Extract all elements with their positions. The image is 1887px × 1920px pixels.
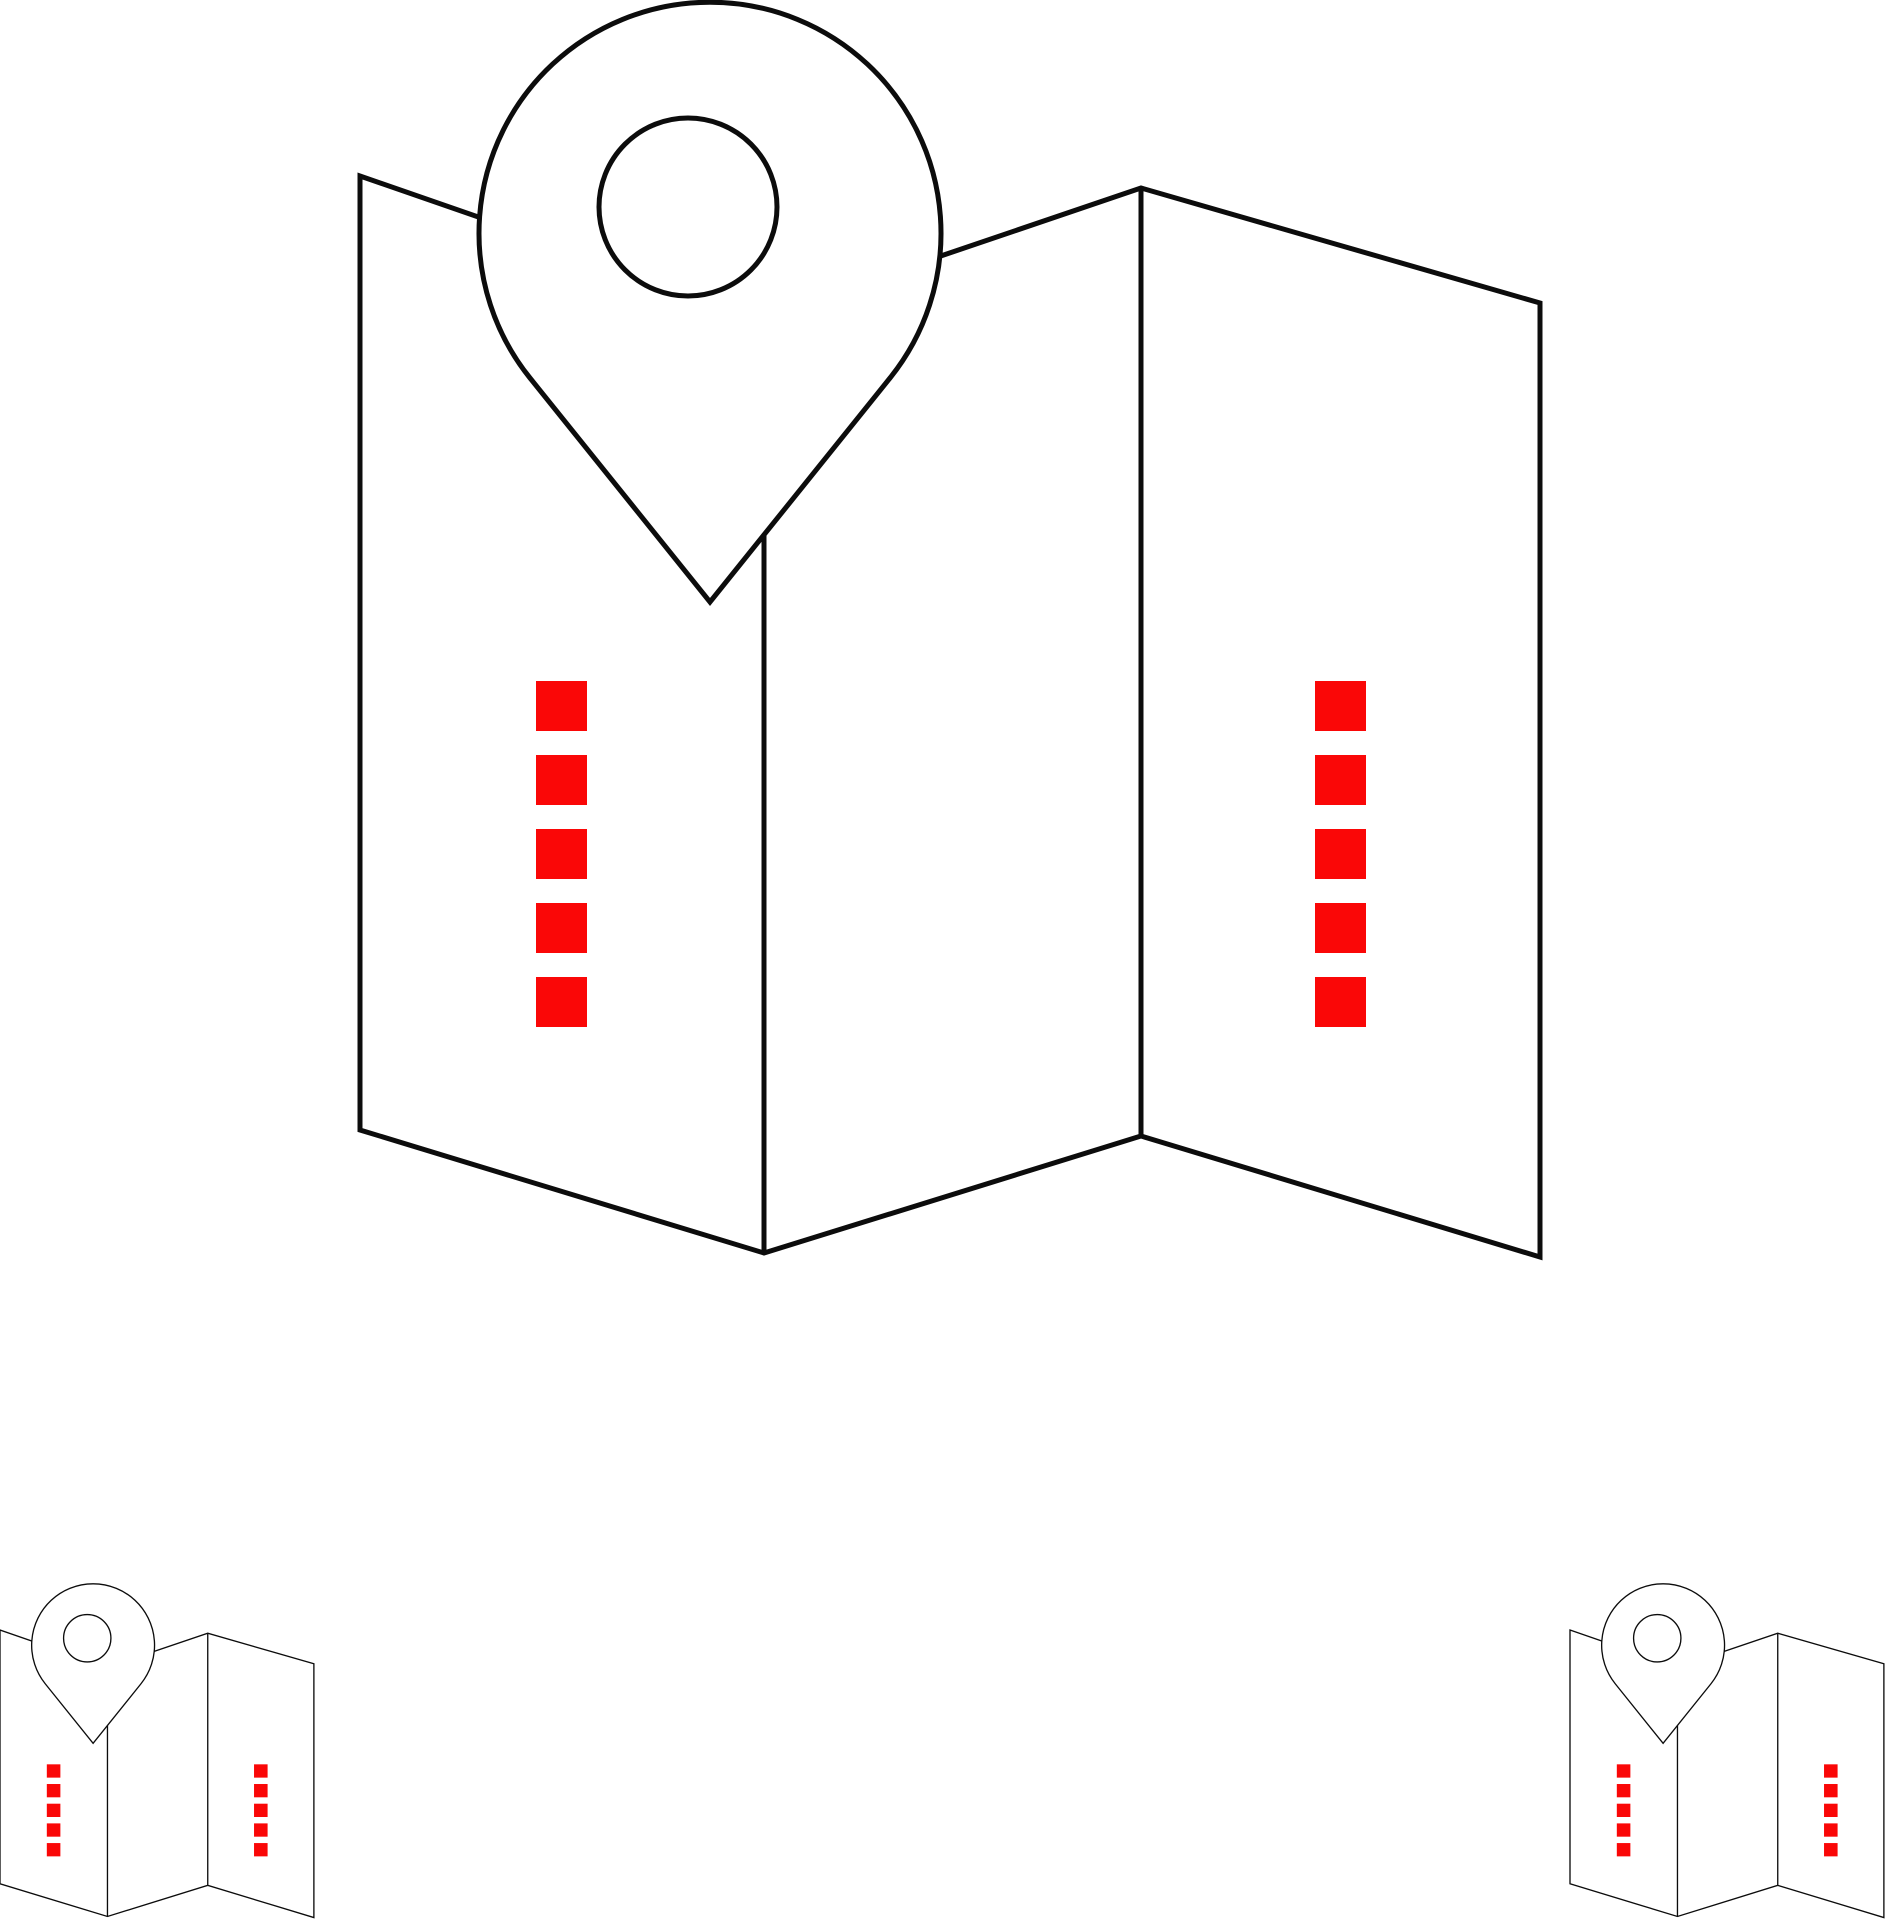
red-marker-square-col2-row3 <box>1315 829 1366 879</box>
map-icon-artwork <box>0 0 1887 1920</box>
red-marker-square-col1-row4 <box>1617 1823 1631 1836</box>
red-marker-square-col1-row2 <box>536 755 587 805</box>
red-marker-square-col2-row1 <box>1315 681 1366 731</box>
map-location-icon-small-left <box>0 1584 314 1918</box>
red-marker-square-col2-row2 <box>1824 1784 1838 1797</box>
red-marker-square-col2-row5 <box>1824 1843 1838 1856</box>
red-marker-square-col2-row2 <box>1315 755 1366 805</box>
red-marker-square-col1-row3 <box>47 1804 61 1817</box>
red-marker-square-col1-row4 <box>47 1823 61 1836</box>
red-marker-square-col2-row4 <box>1315 903 1366 953</box>
red-marker-square-col1-row1 <box>1617 1764 1631 1777</box>
red-marker-square-col1-row1 <box>47 1764 61 1777</box>
pin-hole-circle <box>1634 1615 1681 1662</box>
map-location-icon-small-right <box>1570 1584 1884 1918</box>
icon-sheet <box>0 0 1887 1920</box>
pin-hole-circle <box>599 118 777 296</box>
red-marker-square-col1-row4 <box>536 903 587 953</box>
pin-hole-circle <box>64 1615 111 1662</box>
red-marker-square-col2-row4 <box>1824 1823 1838 1836</box>
red-marker-square-col1-row2 <box>47 1784 61 1797</box>
red-marker-square-col2-row5 <box>254 1843 268 1856</box>
red-marker-square-col2-row3 <box>1824 1804 1838 1817</box>
red-marker-square-col2-row3 <box>254 1804 268 1817</box>
red-marker-square-col2-row2 <box>254 1784 268 1797</box>
red-marker-square-col1-row5 <box>536 977 587 1027</box>
red-marker-square-col1-row5 <box>47 1843 61 1856</box>
red-marker-square-col1-row2 <box>1617 1784 1631 1797</box>
map-location-icon-main <box>360 2 1540 1257</box>
red-marker-square-col1-row5 <box>1617 1843 1631 1856</box>
red-marker-square-col2-row5 <box>1315 977 1366 1027</box>
red-marker-square-col1-row1 <box>536 681 587 731</box>
red-marker-square-col1-row3 <box>536 829 587 879</box>
red-marker-square-col2-row1 <box>1824 1764 1838 1777</box>
red-marker-square-col2-row1 <box>254 1764 268 1777</box>
red-marker-square-col1-row3 <box>1617 1804 1631 1817</box>
red-marker-square-col2-row4 <box>254 1823 268 1836</box>
